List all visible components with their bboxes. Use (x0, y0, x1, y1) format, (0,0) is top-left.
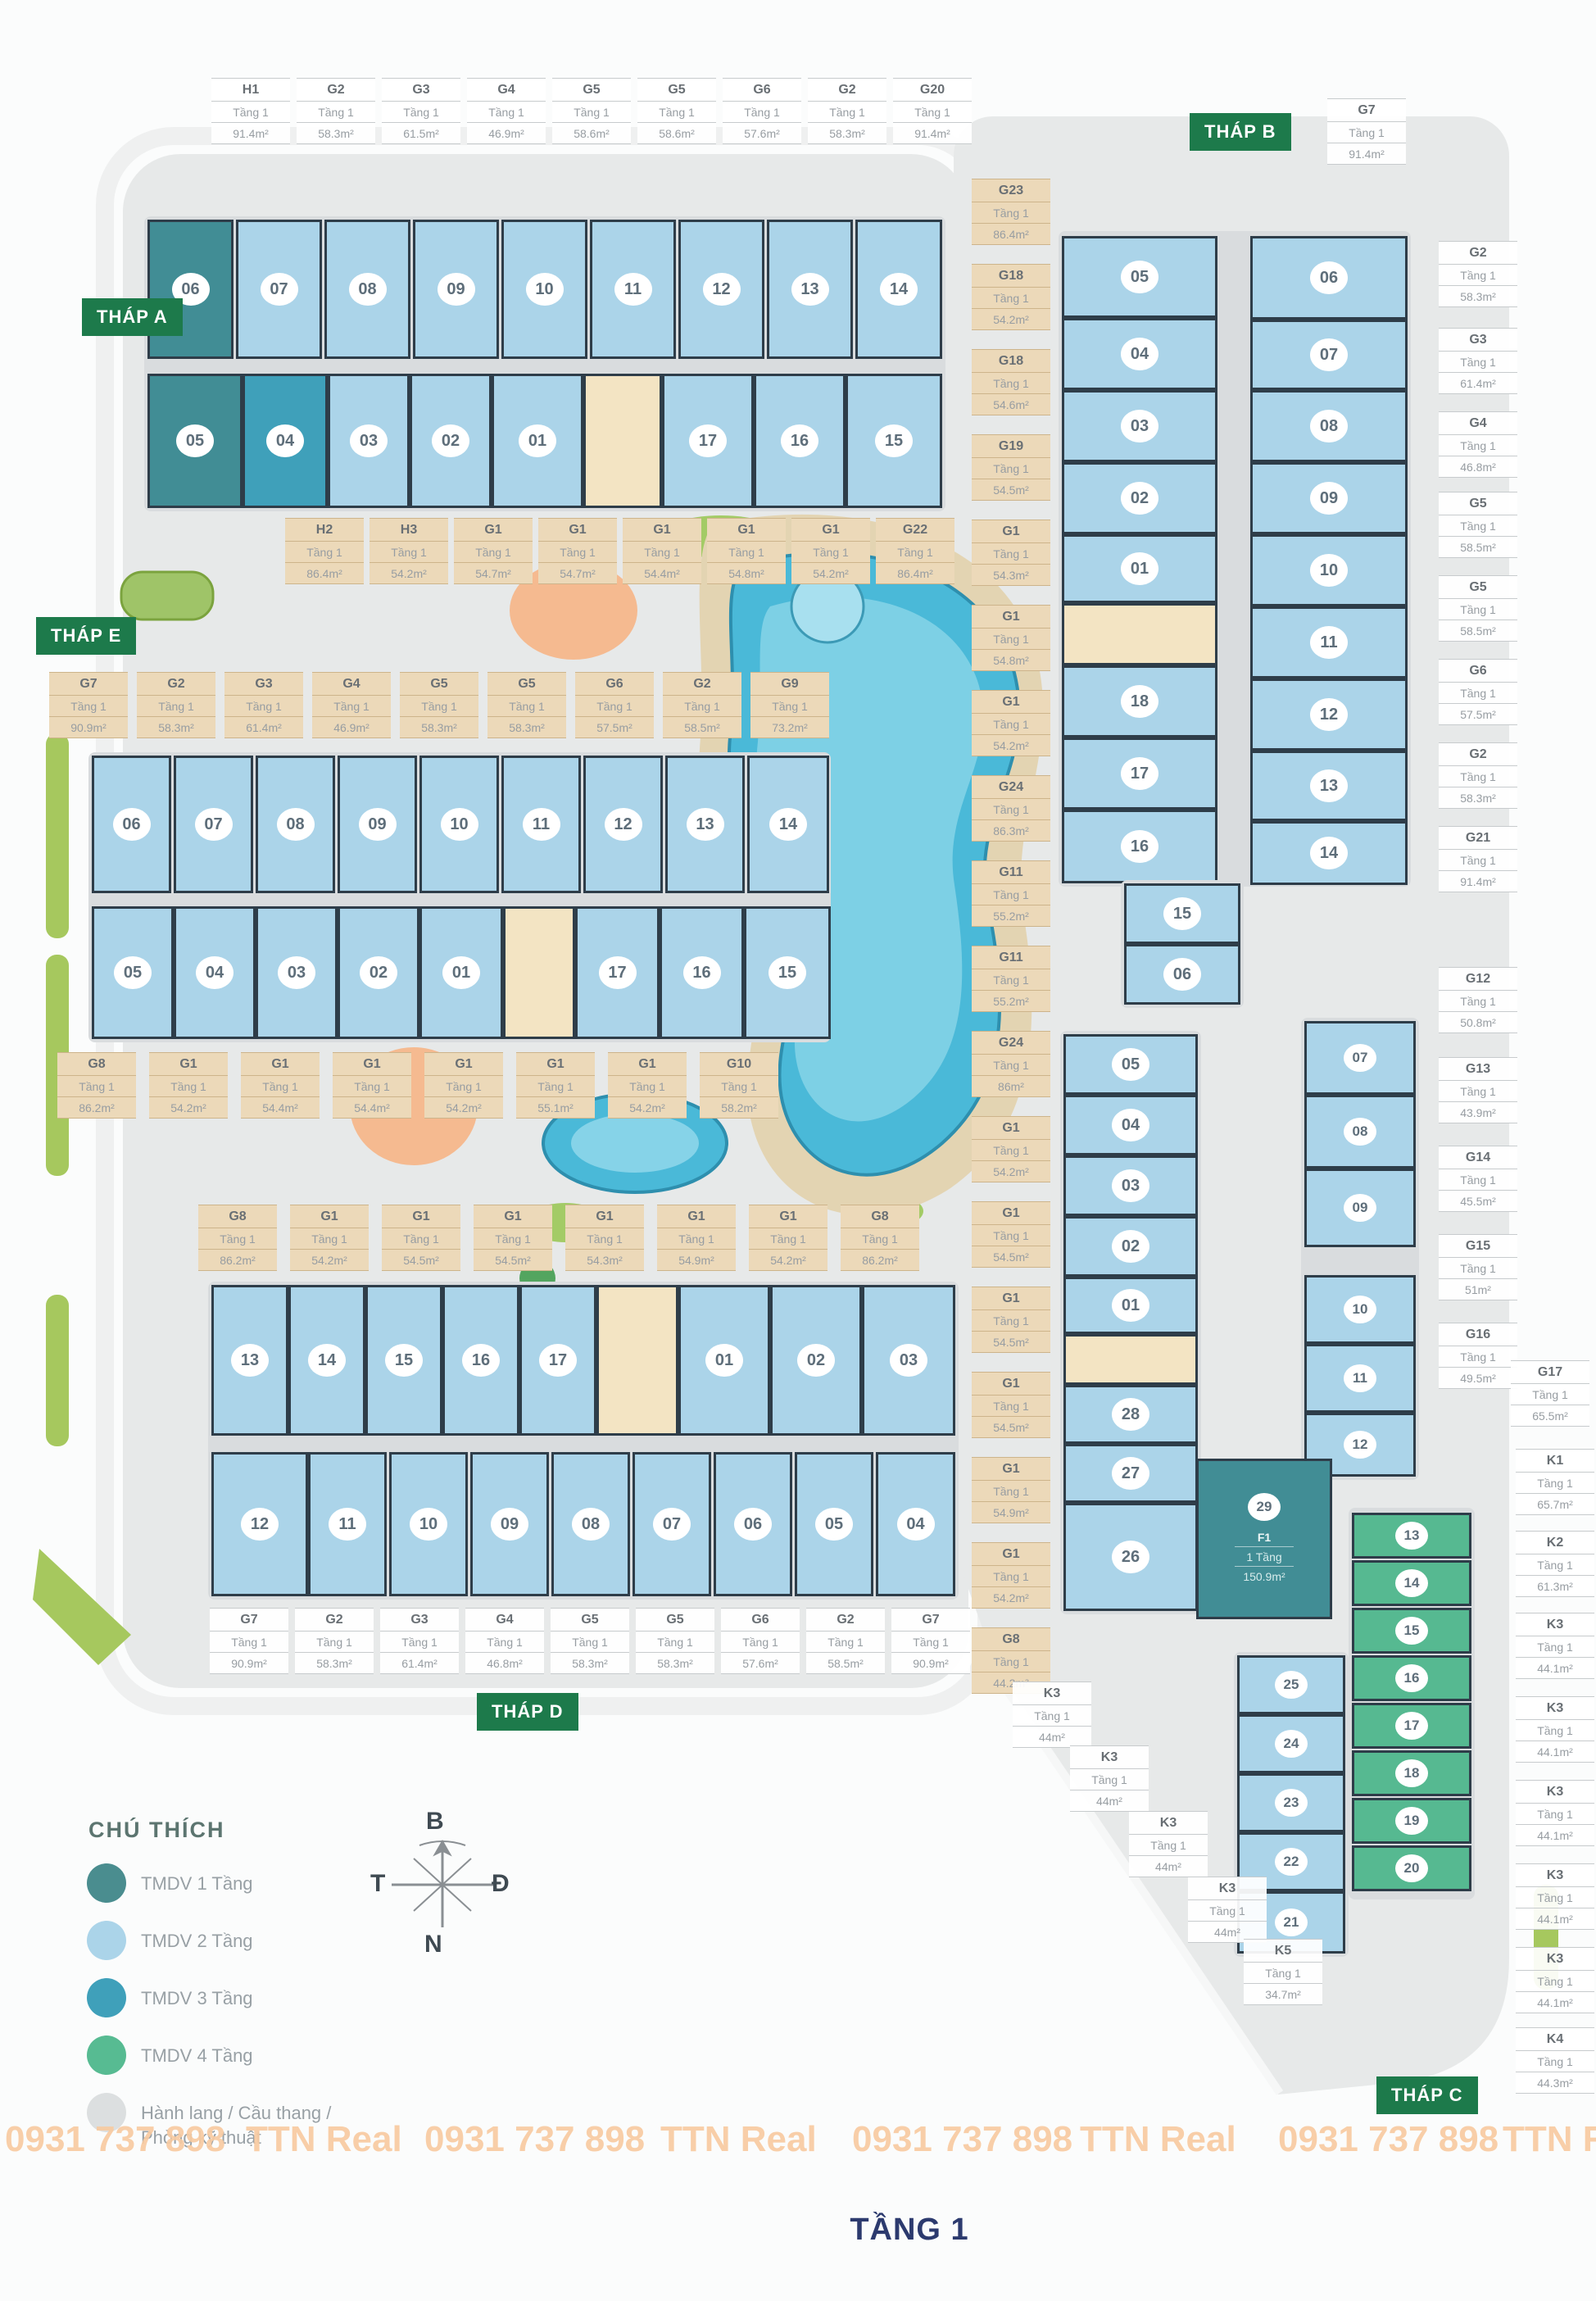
chip-floor: Tầng 1 (972, 202, 1050, 223)
chip-code: G2 (663, 672, 741, 695)
unit-chip-G19: G19Tầng 154.5m² (972, 434, 1050, 501)
unit-chip-G5: G5Tầng 158.5m² (1439, 575, 1517, 642)
chip-floor: Tầng 1 (636, 1631, 714, 1652)
chip-area: 54.2m² (749, 1249, 827, 1270)
chip-floor: Tầng 1 (224, 695, 303, 716)
chip-area: 61.5m² (382, 122, 460, 143)
unit-thap-c-green-14: 14 (1352, 1560, 1471, 1606)
chip-floor: Tầng 1 (210, 1631, 288, 1652)
unit-number: 12 (1344, 1431, 1376, 1459)
chip-floor: Tầng 1 (972, 542, 1050, 564)
chip-area: 54.3m² (565, 1249, 644, 1270)
unit-thap-b-17: 17 (1062, 737, 1217, 810)
chip-floor: Tầng 1 (516, 1075, 595, 1096)
unit-thap-c-green-20: 20 (1352, 1845, 1471, 1891)
unit-number: 09 (1310, 482, 1348, 515)
chip-floor: Tầng 1 (565, 1228, 644, 1249)
unit-thap-a-10: 10 (501, 220, 587, 359)
unit-number: 28 (1112, 1398, 1149, 1431)
unit-number: 17 (1121, 757, 1158, 790)
unit-number: 01 (519, 424, 556, 457)
unit-number: 16 (1121, 830, 1158, 863)
unit-chip-G1: G1Tầng 154.8m² (707, 518, 786, 584)
chip-floor: Tầng 1 (1516, 1636, 1594, 1657)
chip-code: G5 (400, 672, 478, 695)
unit-thap-d-03: 03 (862, 1285, 955, 1436)
unit-number: 08 (572, 1508, 610, 1541)
chip-code: G24 (972, 775, 1050, 798)
chip-floor: Tầng 1 (749, 1228, 827, 1249)
unit-thap-d-01: 01 (678, 1285, 770, 1436)
chip-floor: Tầng 1 (1439, 598, 1517, 619)
legend-label-1: TMDV 1 Tầng (141, 1872, 253, 1896)
unit-number: 06 (113, 808, 151, 841)
chip-area: 54.2m² (424, 1096, 503, 1118)
unit-chip-K3: K3Tầng 144m² (1129, 1811, 1208, 1877)
chip-floor: Tầng 1 (57, 1075, 136, 1096)
unit-number: 10 (1344, 1296, 1376, 1323)
unit-number: 03 (1121, 410, 1158, 442)
unit-number: 16 (781, 424, 818, 457)
chip-area: 44m² (1070, 1790, 1149, 1811)
unit-thap-a-17: 17 (662, 374, 754, 508)
chip-floor: Tầng 1 (1439, 990, 1517, 1011)
chip-floor: Tầng 1 (876, 541, 954, 562)
unit-thap-b-annex-06: 06 (1124, 944, 1240, 1005)
unit-chip-G1: G1Tầng 154.2m² (149, 1052, 228, 1119)
chip-area: 44.1m² (1516, 1991, 1594, 2013)
unit-chip-G1: G1Tầng 155.1m² (516, 1052, 595, 1119)
chip-floor: Tầng 1 (657, 1228, 736, 1249)
chip-code: G9 (750, 672, 829, 695)
chip-code: H2 (285, 518, 364, 541)
chip-floor: Tầng 1 (891, 1631, 970, 1652)
chip-code: G18 (972, 264, 1050, 287)
unit-chip-G2: G2Tầng 158.3m² (295, 1608, 374, 1674)
unit-thap-b-06: 06 (1250, 236, 1408, 320)
unit-chip-G8: G8Tầng 186.2m² (198, 1205, 277, 1271)
unit-thap-e-15: 15 (744, 906, 831, 1039)
unit-number: 27 (1112, 1457, 1149, 1490)
chip-area: 54.5m² (972, 1416, 1050, 1437)
chip-code: H3 (370, 518, 448, 541)
compass-letter-Đ: Đ (492, 1870, 510, 1898)
chip-code: G20 (893, 78, 972, 101)
chip-area: 58.3m² (636, 1652, 714, 1673)
unit-chip-K3: K3Tầng 144m² (1070, 1745, 1149, 1812)
unit-number: 23 (1275, 1789, 1308, 1817)
unit-thap-c-east-08: 08 (1304, 1095, 1416, 1169)
unit-chip-G1: G1Tầng 154.2m² (749, 1205, 827, 1271)
chip-area: 54.5m² (972, 1331, 1050, 1352)
unit-number: 07 (261, 273, 298, 306)
unit-number: 02 (797, 1344, 835, 1377)
chip-floor: Tầng 1 (972, 1054, 1050, 1075)
chip-code: G6 (721, 1608, 800, 1631)
unit-chip-G15: G15Tầng 151m² (1439, 1234, 1517, 1300)
watermark-5: 0931 737 898 (852, 2119, 1072, 2160)
unit-thap-a-01: 01 (492, 374, 583, 508)
chip-code: H1 (211, 78, 290, 101)
unit-thap-c-west-26: 26 (1063, 1503, 1198, 1611)
chip-area: 49.5m² (1439, 1367, 1517, 1388)
unit-chip-K3: K3Tầng 144m² (1188, 1877, 1267, 1943)
legend-swatch-1 (87, 1863, 126, 1903)
unit-chip-G7: G7Tầng 191.4m² (1327, 98, 1406, 165)
chip-area: 34.7m² (1244, 1983, 1322, 2004)
unit-number: 01 (1121, 552, 1158, 585)
unit-number: 04 (266, 424, 304, 457)
unit-thap-c-f1-29: 29F11 Tầng150.9m² (1196, 1459, 1332, 1619)
chip-area: 58.3m² (808, 122, 886, 143)
chip-floor: Tầng 1 (1516, 1886, 1594, 1908)
chip-area: 54.8m² (707, 562, 786, 583)
unit-number: 25 (1275, 1671, 1308, 1699)
chip-code: K2 (1516, 1531, 1594, 1554)
chip-floor: Tầng 1 (1511, 1383, 1589, 1405)
unit-number: 02 (360, 956, 397, 989)
chip-area: 90.9m² (891, 1652, 970, 1673)
unit-chip-G3: G3Tầng 161.5m² (382, 78, 460, 144)
unit-number: 13 (791, 273, 829, 306)
unit-chip-G4: G4Tầng 146.8m² (465, 1608, 544, 1674)
unit-number: 05 (1112, 1048, 1149, 1081)
unit-chip-K3: K3Tầng 144m² (1013, 1681, 1091, 1748)
unit-chip-G1: G1Tầng 154.2m² (608, 1052, 687, 1119)
unit-number: 02 (1112, 1230, 1149, 1263)
chip-area: 54.2m² (972, 308, 1050, 329)
unit-thap-d-02: 02 (770, 1285, 862, 1436)
chip-code: G7 (891, 1608, 970, 1631)
chip-floor: Tầng 1 (1439, 434, 1517, 456)
chip-code: G1 (149, 1052, 228, 1075)
chip-area: 50.8m² (1439, 1011, 1517, 1032)
chip-code: G1 (749, 1205, 827, 1228)
chip-floor: Tầng 1 (972, 1395, 1050, 1416)
unit-thap-d-06: 06 (714, 1452, 792, 1596)
unit-number: 04 (897, 1508, 935, 1541)
chip-floor: Tầng 1 (285, 541, 364, 562)
unit-number: 15 (769, 956, 806, 989)
unit-thap-a-15: 15 (846, 374, 942, 508)
unit-chip-G1: G1Tầng 154.7m² (454, 518, 533, 584)
unit-number: 14 (1310, 837, 1348, 869)
compass-letter-B: B (426, 1808, 444, 1836)
chip-code: G7 (210, 1608, 288, 1631)
chip-code: G5 (637, 78, 716, 101)
unit-number: 07 (1310, 338, 1348, 371)
tower-label-b: THÁP B (1190, 113, 1291, 151)
chip-code: G8 (57, 1052, 136, 1075)
chip-code: G1 (972, 520, 1050, 542)
unit-chip-G18: G18Tầng 154.2m² (972, 264, 1050, 330)
unit-chip-G3: G3Tầng 161.4m² (380, 1608, 459, 1674)
chip-floor: Tầng 1 (400, 695, 478, 716)
page-title: TẦNG 1 (819, 2212, 1000, 2248)
unit-chip-G10: G10Tầng 158.2m² (700, 1052, 778, 1119)
unit-chip-G5: G5Tầng 158.3m² (551, 1608, 629, 1674)
chip-area: 65.5m² (1511, 1405, 1589, 1426)
unit-number: 10 (526, 273, 564, 306)
chip-area: 58.2m² (700, 1096, 778, 1118)
chip-floor: Tầng 1 (241, 1075, 320, 1096)
unit-thap-e-01: 01 (419, 906, 503, 1039)
chip-area: 54.5m² (972, 479, 1050, 500)
unit-number: 09 (491, 1508, 528, 1541)
chip-floor: Tầng 1 (1516, 1970, 1594, 1991)
unit-chip-G8: G8Tầng 186.2m² (57, 1052, 136, 1119)
chip-area: 54.9m² (972, 1501, 1050, 1523)
chip-floor: Tầng 1 (382, 1228, 460, 1249)
chip-floor: Tầng 1 (1439, 849, 1517, 870)
unit-chip-G7: G7Tầng 190.9m² (49, 672, 128, 738)
unit-thap-b-03: 03 (1062, 390, 1217, 462)
chip-area: 44.1m² (1516, 1657, 1594, 1678)
unit-thap-c-green-17: 17 (1352, 1703, 1471, 1749)
legend-label-4: TMDV 4 Tầng (141, 2044, 253, 2068)
chip-floor: Tầng 1 (972, 372, 1050, 393)
chip-code: G17 (1511, 1360, 1589, 1383)
chip-code: G1 (657, 1205, 736, 1228)
unit-thap-b-annex-15: 15 (1124, 883, 1240, 944)
unit-chip-G23: G23Tầng 186.4m² (972, 179, 1050, 245)
unit-thap-a-02: 02 (410, 374, 492, 508)
unit-number: 08 (1310, 410, 1348, 442)
chip-code: G16 (1439, 1323, 1517, 1346)
chip-code: K3 (1070, 1745, 1149, 1768)
chip-floor: Tầng 1 (972, 1224, 1050, 1246)
chip-floor: Tầng 1 (465, 1631, 544, 1652)
unit-number: 09 (359, 808, 397, 841)
unit-chip-G3: G3Tầng 161.4m² (1439, 328, 1517, 394)
watermark-8: TTN Real (1503, 2119, 1596, 2160)
legend-swatch-4 (87, 2035, 126, 2075)
chip-floor: Tầng 1 (1516, 1554, 1594, 1575)
chip-code: K3 (1516, 1780, 1594, 1803)
unit-number: 01 (705, 1344, 743, 1377)
unit-thap-c-west-04: 04 (1063, 1095, 1198, 1155)
unit-chip-G13: G13Tầng 143.9m² (1439, 1057, 1517, 1123)
tower-label-e: THÁP E (36, 617, 136, 655)
unit-thap-b-08: 08 (1250, 390, 1408, 462)
unit-number: 24 (1275, 1730, 1308, 1758)
unit-thap-a-04: 04 (243, 374, 328, 508)
watermark-7: 0931 737 898 (1278, 2119, 1499, 2160)
unit-thap-b-05: 05 (1062, 236, 1217, 318)
unit-thap-c-green-15: 15 (1352, 1608, 1471, 1654)
chip-code: G1 (972, 1201, 1050, 1224)
unit-thap-e-02: 02 (338, 906, 419, 1039)
chip-area: 91.4m² (1439, 870, 1517, 892)
chip-code: G5 (636, 1608, 714, 1631)
unit-chip-K3: K3Tầng 144.1m² (1516, 1863, 1594, 1930)
chip-area: 58.5m² (1439, 619, 1517, 641)
chip-area: 46.8m² (1439, 456, 1517, 477)
chip-floor: Tầng 1 (1439, 351, 1517, 372)
chip-code: G5 (487, 672, 566, 695)
chip-area: 86.4m² (285, 562, 364, 583)
unit-number: 10 (410, 1508, 447, 1541)
chip-code: G1 (972, 1372, 1050, 1395)
chip-area: 57.6m² (721, 1652, 800, 1673)
chip-code: K4 (1516, 2027, 1594, 2050)
chip-code: G3 (1439, 328, 1517, 351)
unit-sub-label: F11 Tầng150.9m² (1235, 1527, 1293, 1586)
chip-floor: Tầng 1 (808, 101, 886, 122)
unit-chip-G22: G22Tầng 186.4m² (876, 518, 954, 584)
unit-thap-d-05: 05 (795, 1452, 873, 1596)
chip-code: G2 (137, 672, 215, 695)
chip-floor: Tầng 1 (1516, 1472, 1594, 1493)
chip-area: 73.2m² (750, 716, 829, 737)
chip-area: 86.3m² (972, 819, 1050, 841)
unit-thap-a-05: 05 (147, 374, 243, 508)
unit-chip-G1: G1Tầng 154.3m² (972, 520, 1050, 586)
unit-chip-G7: G7Tầng 190.9m² (891, 1608, 970, 1674)
chip-code: G1 (623, 518, 701, 541)
unit-chip-G21: G21Tầng 191.4m² (1439, 826, 1517, 892)
unit-thap-d-11: 11 (308, 1452, 387, 1596)
chip-floor: Tầng 1 (1516, 1719, 1594, 1740)
chip-area: 54.2m² (370, 562, 448, 583)
chip-area: 58.3m² (551, 1652, 629, 1673)
chip-area: 54.6m² (972, 393, 1050, 415)
watermark-3: 0931 737 898 (424, 2119, 645, 2160)
chip-code: G3 (224, 672, 303, 695)
unit-chip-G1: G1Tầng 154.5m² (972, 1287, 1050, 1353)
unit-number: 06 (1163, 958, 1201, 991)
unit-thap-b-02: 02 (1062, 462, 1217, 534)
chip-code: G11 (972, 860, 1050, 883)
chip-floor: Tầng 1 (806, 1631, 885, 1652)
chip-area: 55.1m² (516, 1096, 595, 1118)
chip-area: 58.3m² (400, 716, 478, 737)
legend-heading: CHÚ THÍCH (88, 1818, 225, 1843)
unit-number: 01 (442, 956, 480, 989)
unit-chip-G1: G1Tầng 154.4m² (333, 1052, 411, 1119)
chip-code: G1 (565, 1205, 644, 1228)
chip-code: G8 (841, 1205, 919, 1228)
unit-number: 07 (653, 1508, 691, 1541)
chip-code: G1 (333, 1052, 411, 1075)
unit-thap-b-13: 13 (1250, 751, 1408, 821)
chip-floor: Tầng 1 (972, 798, 1050, 819)
unit-chip-G1: G1Tầng 154.3m² (565, 1205, 644, 1271)
unit-number: 08 (349, 273, 387, 306)
unit-chip-G18: G18Tầng 154.6m² (972, 349, 1050, 415)
chip-floor: Tầng 1 (474, 1228, 552, 1249)
unit-thap-c-east-10: 10 (1304, 1275, 1416, 1344)
unit-number: 20 (1395, 1854, 1428, 1882)
unit-sub-code: F1 (1235, 1527, 1293, 1546)
unit-chip-G1: G1Tầng 154.9m² (972, 1457, 1050, 1523)
chip-floor: Tầng 1 (149, 1075, 228, 1096)
chip-floor: Tầng 1 (333, 1075, 411, 1096)
unit-chip-G11: G11Tầng 155.2m² (972, 946, 1050, 1012)
chip-code: G2 (295, 1608, 374, 1631)
unit-thap-e-03: 03 (256, 906, 338, 1039)
chip-floor: Tầng 1 (552, 101, 631, 122)
chip-area: 58.3m² (1439, 285, 1517, 306)
unit-chip-H2: H2Tầng 186.4m² (285, 518, 364, 584)
unit-number: 12 (703, 273, 741, 306)
chip-area: 54.2m² (791, 562, 870, 583)
unit-thap-a-07: 07 (236, 220, 322, 359)
chip-floor: Tầng 1 (1439, 1257, 1517, 1278)
unit-thap-e-05: 05 (92, 906, 174, 1039)
unit-chip-K2: K2Tầng 161.3m² (1516, 1531, 1594, 1597)
tower-label-a: THÁP A (82, 298, 183, 336)
chip-floor: Tầng 1 (1439, 264, 1517, 285)
unit-number: 11 (329, 1508, 366, 1541)
unit-number: 13 (1395, 1522, 1428, 1550)
unit-thap-c-strip-23: 23 (1237, 1773, 1345, 1832)
unit-number: 08 (277, 808, 315, 841)
chip-area: 86.2m² (57, 1096, 136, 1118)
chip-area: 54.8m² (972, 649, 1050, 670)
chip-code: G1 (424, 1052, 503, 1075)
chip-code: G1 (290, 1205, 369, 1228)
chip-area: 44.3m² (1516, 2072, 1594, 2093)
unit-chip-G2: G2Tầng 158.3m² (1439, 241, 1517, 307)
unit-chip-G1: G1Tầng 154.4m² (623, 518, 701, 584)
chip-code: G14 (1439, 1146, 1517, 1169)
unit-chip-K1: K1Tầng 165.7m² (1516, 1449, 1594, 1515)
chip-floor: Tầng 1 (1439, 1169, 1517, 1190)
chip-code: G5 (1439, 575, 1517, 598)
unit-chip-G1: G1Tầng 154.2m² (424, 1052, 503, 1119)
chip-floor: Tầng 1 (663, 695, 741, 716)
chip-code: G1 (538, 518, 617, 541)
unit-number: 09 (438, 273, 475, 306)
unit-number: 10 (1310, 554, 1348, 587)
chip-floor: Tầng 1 (312, 695, 391, 716)
chip-floor: Tầng 1 (972, 1565, 1050, 1586)
unit-thap-d-16: 16 (442, 1285, 519, 1436)
unit-number: 03 (890, 1344, 927, 1377)
chip-code: G1 (972, 1542, 1050, 1565)
unit-number: 22 (1275, 1848, 1308, 1876)
unit-number: 03 (278, 956, 315, 989)
chip-floor: Tầng 1 (137, 695, 215, 716)
chip-code: G4 (312, 672, 391, 695)
chip-area: 54.4m² (241, 1096, 320, 1118)
chip-floor: Tầng 1 (1070, 1768, 1149, 1790)
chip-area: 91.4m² (1327, 143, 1406, 164)
chip-floor: Tầng 1 (608, 1075, 687, 1096)
unit-thap-e-12: 12 (583, 756, 663, 893)
chip-code: G1 (454, 518, 533, 541)
unit-chip-G1: G1Tầng 154.2m² (972, 1542, 1050, 1609)
watermark-2: TTN Real (246, 2119, 402, 2160)
unit-number: 15 (875, 424, 913, 457)
unit-thap-b-11: 11 (1250, 606, 1408, 678)
chip-area: 91.4m² (893, 122, 972, 143)
chip-code: G1 (241, 1052, 320, 1075)
chip-area: 57.5m² (575, 716, 654, 737)
unit-chip-G1: G1Tầng 154.4m² (241, 1052, 320, 1119)
unit-chip-G4: G4Tầng 146.8m² (1439, 411, 1517, 478)
chip-floor: Tầng 1 (1439, 682, 1517, 703)
chip-area: 57.5m² (1439, 703, 1517, 724)
unit-number: 07 (1344, 1044, 1376, 1072)
unit-thap-a-08: 08 (324, 220, 410, 359)
chip-code: K3 (1013, 1681, 1091, 1704)
chip-code: G5 (552, 78, 631, 101)
unit-thap-c-green-18: 18 (1352, 1750, 1471, 1796)
unit-number: 13 (231, 1344, 269, 1377)
chip-floor: Tầng 1 (198, 1228, 277, 1249)
